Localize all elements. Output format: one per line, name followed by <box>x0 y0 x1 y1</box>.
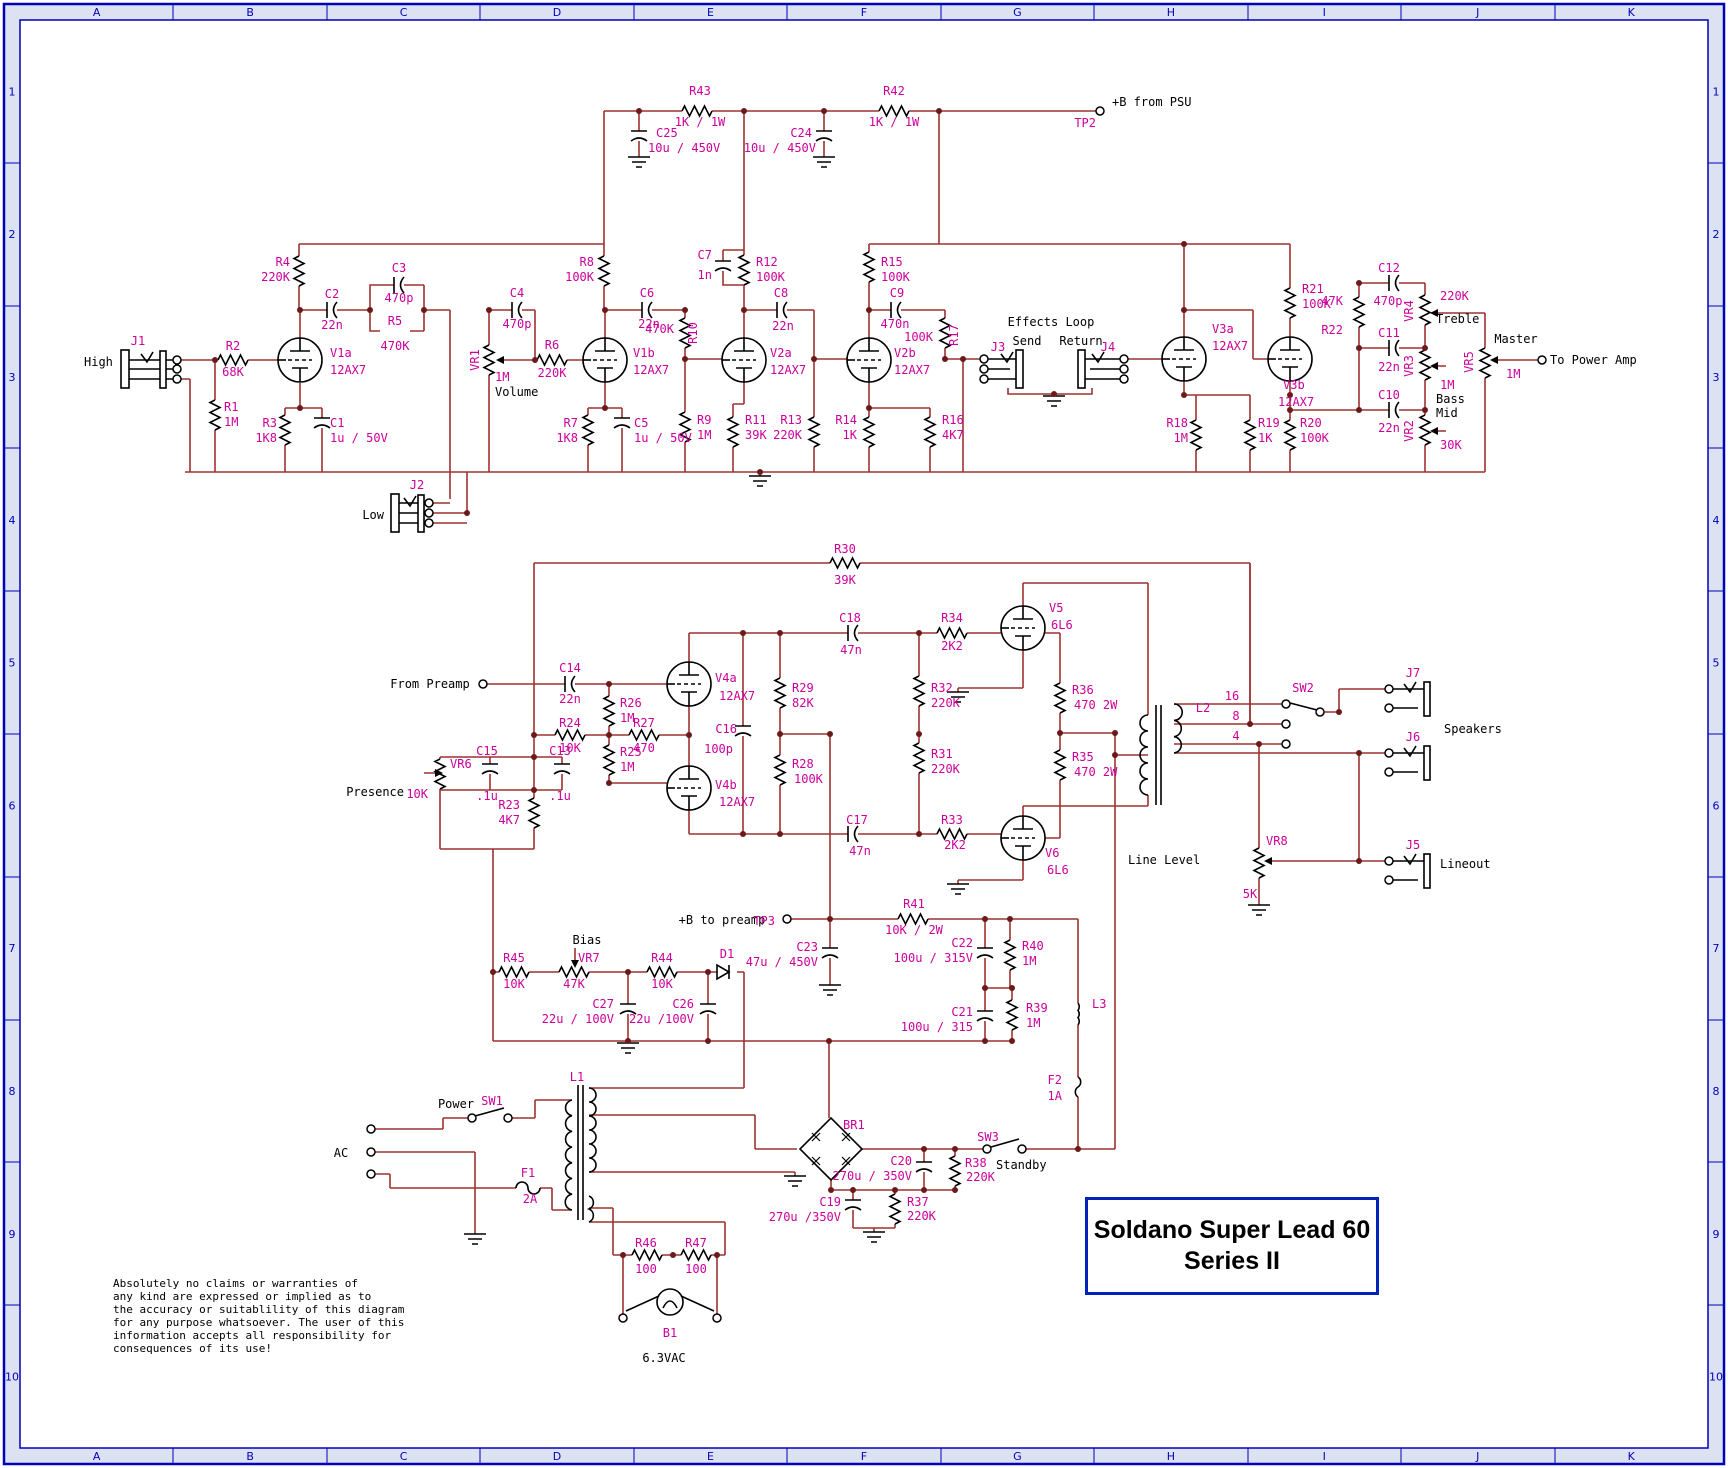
label-3: 3 <box>9 371 16 384</box>
label-22n: 22n <box>772 319 794 333</box>
label-l3: L3 <box>1092 997 1106 1011</box>
label-12ax7: 12AX7 <box>719 689 755 703</box>
label-1m: 1M <box>1174 431 1188 445</box>
label-9: 9 <box>1713 1228 1720 1241</box>
label-100k: 100K <box>565 270 595 284</box>
label-47k: 47K <box>563 977 585 991</box>
label-6: 6 <box>1713 799 1720 812</box>
label-c12: C12 <box>1378 261 1400 275</box>
label-r1: R1 <box>224 400 238 414</box>
label-vr2: VR2 <box>1402 420 1416 442</box>
label-100u-315v: 100u / 315V <box>894 951 973 965</box>
label-1m: 1M <box>224 415 238 429</box>
label-tp3: TP3 <box>753 914 775 928</box>
label-12ax7: 12AX7 <box>719 795 755 809</box>
label-100: 100 <box>635 1262 657 1276</box>
label-c23: C23 <box>796 940 818 954</box>
label-2a: 2A <box>523 1192 538 1206</box>
label-1m: 1M <box>697 428 711 442</box>
label-r4: R4 <box>276 255 290 269</box>
label-v3b: V3b <box>1283 378 1305 392</box>
label-c: C <box>400 1450 408 1463</box>
label-r8: R8 <box>580 255 594 269</box>
label-k: K <box>1628 1450 1636 1463</box>
label-r31: R31 <box>931 747 953 761</box>
label-standby: Standby <box>996 1158 1047 1172</box>
label-c16: C16 <box>715 722 737 736</box>
label-r6: R6 <box>545 338 559 352</box>
label-100k: 100K <box>1300 431 1330 445</box>
label-r10: R10 <box>686 322 700 344</box>
label-e: E <box>707 6 714 19</box>
label-vr1: VR1 <box>468 349 482 371</box>
label-r32: R32 <box>931 681 953 695</box>
label-4: 4 <box>9 514 16 527</box>
label-v4b: V4b <box>715 778 737 792</box>
label-220k: 220K <box>931 696 961 710</box>
label-r20: R20 <box>1300 416 1322 430</box>
label-c22: C22 <box>951 936 973 950</box>
label-220k: 220K <box>907 1209 937 1223</box>
label-c24: C24 <box>790 126 812 140</box>
label-1m: 1M <box>495 370 509 384</box>
label-100p: 100p <box>704 742 733 756</box>
label-r42: R42 <box>883 84 905 98</box>
label-g: G <box>1013 6 1022 19</box>
label-1a: 1A <box>1048 1089 1063 1103</box>
label-1k8: 1K8 <box>556 431 578 445</box>
label-j: J <box>1475 6 1479 19</box>
label-c20: C20 <box>890 1154 912 1168</box>
label-j: J <box>1475 1450 1479 1463</box>
label-r46: R46 <box>635 1236 657 1250</box>
label-tp2: TP2 <box>1074 116 1096 130</box>
label-r38: R38 <box>965 1156 987 1170</box>
label-22u-100v: 22u / 100V <box>542 1012 614 1026</box>
label-c13: C13 <box>549 744 571 758</box>
label-a: A <box>93 6 101 19</box>
label-f1: F1 <box>521 1166 535 1180</box>
label-4: 4 <box>1713 514 1720 527</box>
label-10: 10 <box>1709 1371 1723 1384</box>
label-r3: R3 <box>263 416 277 430</box>
label-b: B <box>246 1450 254 1463</box>
label-r19: R19 <box>1258 416 1280 430</box>
label-e: E <box>707 1450 714 1463</box>
title-line2: Series II <box>1184 1246 1280 1277</box>
label-vr5: VR5 <box>1462 351 1476 373</box>
label-100: 100 <box>685 1262 707 1276</box>
label-5k: 5K <box>1243 887 1258 901</box>
label-12ax7: 12AX7 <box>330 363 366 377</box>
label-r41: R41 <box>903 897 925 911</box>
label-v3a: V3a <box>1212 322 1234 336</box>
label-1m: 1M <box>620 760 634 774</box>
label-9: 9 <box>9 1228 16 1241</box>
label-r33: R33 <box>941 813 963 827</box>
label-r27: R27 <box>633 716 655 730</box>
disclaimer-line: information accepts all responsibility f… <box>113 1329 413 1342</box>
label-c25: C25 <box>656 126 678 140</box>
label-10k: 10K <box>406 787 428 801</box>
label-1k-1w: 1K / 1W <box>675 115 726 129</box>
label-k: K <box>1628 6 1636 19</box>
title-block: Soldano Super Lead 60 Series II <box>1085 1197 1379 1295</box>
label-c26: C26 <box>672 997 694 1011</box>
label-h: H <box>1167 1450 1175 1463</box>
label-r9: R9 <box>697 413 711 427</box>
label-22n: 22n <box>321 318 343 332</box>
label-10: 10 <box>5 1371 19 1384</box>
label-r13: R13 <box>780 413 802 427</box>
label-g: G <box>1013 1450 1022 1463</box>
label-r30: R30 <box>834 542 856 556</box>
label-r47: R47 <box>685 1236 707 1250</box>
label-c6: C6 <box>640 286 654 300</box>
label-presence: Presence <box>346 785 404 799</box>
label-j1: J1 <box>131 334 145 348</box>
label-100k: 100K <box>756 270 786 284</box>
label-j3: J3 <box>991 340 1005 354</box>
label-volume: Volume <box>495 385 538 399</box>
disclaimer-line: Absolutely no claims or warranties of <box>113 1277 413 1290</box>
label-r39: R39 <box>1026 1001 1048 1015</box>
label-c15: C15 <box>476 744 498 758</box>
label-470n: 470n <box>881 317 910 331</box>
label-from-preamp: From Preamp <box>390 677 469 691</box>
title-line1: Soldano Super Lead 60 <box>1094 1215 1370 1246</box>
label-r15: R15 <box>881 255 903 269</box>
label-8: 8 <box>1232 709 1239 723</box>
label-7: 7 <box>9 942 16 955</box>
label-r16: R16 <box>942 413 964 427</box>
label-1m: 1M <box>1440 378 1454 392</box>
label-j6: J6 <box>1406 730 1420 744</box>
label-12ax7: 12AX7 <box>770 363 806 377</box>
label-i: I <box>1323 6 1326 19</box>
label-12ax7: 12AX7 <box>633 363 669 377</box>
label-c10: C10 <box>1378 388 1400 402</box>
label-a: A <box>93 1450 101 1463</box>
label-c4: C4 <box>510 286 524 300</box>
label-12ax7: 12AX7 <box>1278 395 1314 409</box>
label-2k2: 2K2 <box>944 838 966 852</box>
label-j4: J4 <box>1101 340 1115 354</box>
label-r29: R29 <box>792 681 814 695</box>
label-220k: 220K <box>261 270 291 284</box>
label-r17: R17 <box>947 324 961 346</box>
label-r43: R43 <box>689 84 711 98</box>
label-v1b: V1b <box>633 346 655 360</box>
label-r18: R18 <box>1166 416 1188 430</box>
label-22n: 22n <box>1378 421 1400 435</box>
label-b: B <box>246 6 254 19</box>
label-1k: 1K <box>1258 431 1273 445</box>
label-2: 2 <box>1713 228 1720 241</box>
label-82k: 82K <box>792 696 814 710</box>
disclaimer-line: consequences of its use! <box>113 1342 413 1355</box>
schematic-canvas: AABBCCDDEEFFGGHHIIJJKK112233445566778899… <box>0 0 1728 1468</box>
label-r25: R25 <box>620 745 642 759</box>
label-l1: L1 <box>570 1070 584 1084</box>
label-r22: R22 <box>1321 323 1343 337</box>
label-f2: F2 <box>1048 1073 1062 1087</box>
label-sw2: SW2 <box>1292 681 1314 695</box>
label-f: F <box>861 1450 867 1463</box>
label-2k2: 2K2 <box>941 639 963 653</box>
label-68k: 68K <box>222 365 244 379</box>
label-470-2w: 470 2W <box>1074 698 1118 712</box>
label-r26: R26 <box>620 696 642 710</box>
label-r5: R5 <box>388 314 402 328</box>
label-8: 8 <box>1713 1085 1720 1098</box>
label-j5: J5 <box>1406 838 1420 852</box>
label-22n: 22n <box>1378 360 1400 374</box>
label-470k: 470K <box>381 339 411 353</box>
label-send: Send <box>1013 334 1042 348</box>
label-r34: R34 <box>941 611 963 625</box>
label-to-power-amp: To Power Amp <box>1550 353 1637 367</box>
label-4: 4 <box>1232 729 1239 743</box>
label-10u-450v: 10u / 450V <box>744 141 816 155</box>
label-8: 8 <box>9 1085 16 1098</box>
label-.1u: .1u <box>476 789 498 803</box>
label-c8: C8 <box>774 286 788 300</box>
label-r23: R23 <box>498 798 520 812</box>
label-220k: 220K <box>773 428 803 442</box>
label-j2: J2 <box>410 478 424 492</box>
label-c2: C2 <box>325 287 339 301</box>
label-7: 7 <box>1713 942 1720 955</box>
label-d: D <box>553 1450 561 1463</box>
label-10k: 10K <box>651 977 673 991</box>
label-f: F <box>861 6 867 19</box>
label-low: Low <box>362 508 384 522</box>
label-v1a: V1a <box>330 346 352 360</box>
label-r45: R45 <box>503 951 525 965</box>
label-10k-2w: 10K / 2W <box>885 923 944 937</box>
disclaimer-text: Absolutely no claims or warranties ofany… <box>113 1277 413 1355</box>
label-d: D <box>553 6 561 19</box>
label-sw3: SW3 <box>977 1130 999 1144</box>
label-c14: C14 <box>559 661 581 675</box>
label-v4a: V4a <box>715 671 737 685</box>
label-5: 5 <box>9 657 16 670</box>
label-12ax7: 12AX7 <box>1212 339 1248 353</box>
label-270u-350v: 270u /350V <box>769 1210 841 1224</box>
label-mid: Mid <box>1436 406 1458 420</box>
label-10u-450v: 10u / 450V <box>648 141 720 155</box>
label-6l6: 6L6 <box>1047 863 1069 877</box>
label-1n: 1n <box>698 268 712 282</box>
label-v6: V6 <box>1045 846 1059 860</box>
label-c7: C7 <box>698 248 712 262</box>
label-c: C <box>400 6 408 19</box>
label-c11: C11 <box>1378 326 1400 340</box>
label-100u-315: 100u / 315 <box>901 1020 973 1034</box>
label-220k: 220K <box>1440 289 1470 303</box>
label-r44: R44 <box>651 951 673 965</box>
label-return: Return <box>1059 334 1102 348</box>
label-1: 1 <box>9 85 16 98</box>
label-1m: 1M <box>1506 367 1520 381</box>
label-470p: 470p <box>503 317 532 331</box>
label-v5: V5 <box>1049 601 1063 615</box>
label-6l6: 6L6 <box>1051 618 1073 632</box>
label-1k: 1K <box>843 428 858 442</box>
label-line-level: Line Level <box>1128 853 1200 867</box>
label-270u-350v: 270u / 350V <box>833 1169 912 1183</box>
label-r2: R2 <box>226 339 240 353</box>
label-c27: C27 <box>592 997 614 1011</box>
label-bias: Bias <box>573 933 602 947</box>
label-1m: 1M <box>1026 1016 1040 1030</box>
label-r40: R40 <box>1022 939 1044 953</box>
label-220k: 220K <box>966 1170 996 1184</box>
label-ac: AC <box>334 1146 348 1160</box>
label-high: High <box>84 355 113 369</box>
label-10k: 10K <box>503 977 525 991</box>
label-2: 2 <box>9 228 16 241</box>
label-1: 1 <box>1713 85 1720 98</box>
label-r37: R37 <box>907 1195 929 1209</box>
label-100k: 100K <box>794 772 824 786</box>
label-vr7: VR7 <box>578 951 600 965</box>
label-d1: D1 <box>720 947 734 961</box>
label-speakers: Speakers <box>1444 722 1502 736</box>
label-470p: 470p <box>385 291 414 305</box>
label-c18: C18 <box>839 611 861 625</box>
label-c17: C17 <box>846 813 868 827</box>
label-r7: R7 <box>564 416 578 430</box>
label-bass: Bass <box>1436 392 1465 406</box>
label-r28: R28 <box>792 757 814 771</box>
label-1m: 1M <box>1022 954 1036 968</box>
label-6: 6 <box>9 799 16 812</box>
label-.1u: .1u <box>549 789 571 803</box>
label-22u-100v: 22u /100V <box>629 1012 694 1026</box>
label-sw1: SW1 <box>481 1094 503 1108</box>
label-c19: C19 <box>819 1195 841 1209</box>
label-470k: 470K <box>645 322 675 336</box>
label-r12: R12 <box>756 255 778 269</box>
label-30k: 30K <box>1440 438 1462 452</box>
label-v2a: V2a <box>770 346 792 360</box>
label-lineout: Lineout <box>1440 857 1491 871</box>
label-100k: 100K <box>904 330 934 344</box>
label-1k-1w: 1K / 1W <box>869 115 920 129</box>
label-r35: R35 <box>1072 750 1094 764</box>
label-+b-from-psu: +B from PSU <box>1112 95 1191 109</box>
label-c3: C3 <box>392 261 406 275</box>
label-r24: R24 <box>559 716 581 730</box>
label-100k: 100K <box>881 270 911 284</box>
label-16: 16 <box>1225 689 1239 703</box>
label-master: Master <box>1494 332 1537 346</box>
label-47u-450v: 47u / 450V <box>746 955 818 969</box>
label-6.3vac: 6.3VAC <box>642 1351 685 1365</box>
label-vr4: VR4 <box>1402 300 1416 322</box>
label-5: 5 <box>1713 657 1720 670</box>
label-470p: 470p <box>1374 294 1403 308</box>
schematic-sheet: AABBCCDDEEFFGGHHIIJJKK112233445566778899… <box>0 0 1728 1468</box>
label-1u-50v: 1u / 50V <box>634 431 692 445</box>
label-effects-loop: Effects Loop <box>1008 315 1095 329</box>
label-3: 3 <box>1713 371 1720 384</box>
label-c5: C5 <box>634 416 648 430</box>
label-4k7: 4K7 <box>498 813 520 827</box>
disclaimer-line: for any purpose whatsoever. The user of … <box>113 1316 413 1329</box>
label-c21: C21 <box>951 1005 973 1019</box>
label-v2b: V2b <box>894 346 916 360</box>
label-h: H <box>1167 6 1175 19</box>
label-39k: 39K <box>834 573 856 587</box>
label-r11: R11 <box>745 413 767 427</box>
label-vr8: VR8 <box>1266 834 1288 848</box>
label-br1: BR1 <box>843 1118 865 1132</box>
label-l2: L2 <box>1196 701 1210 715</box>
label-treble: Treble <box>1436 312 1479 326</box>
label-1u-50v: 1u / 50V <box>330 431 388 445</box>
label-c9: C9 <box>890 286 904 300</box>
label-39k: 39K <box>745 428 767 442</box>
label-1k8: 1K8 <box>255 431 277 445</box>
label-r14: R14 <box>835 413 857 427</box>
label-vr6: VR6 <box>450 757 472 771</box>
label-22n: 22n <box>559 692 581 706</box>
label-470-2w: 470 2W <box>1074 765 1118 779</box>
label-12ax7: 12AX7 <box>894 363 930 377</box>
label-b1: B1 <box>663 1326 677 1340</box>
label-4k7: 4K7 <box>942 428 964 442</box>
label-220k: 220K <box>538 366 568 380</box>
label-47n: 47n <box>840 643 862 657</box>
label-c1: C1 <box>330 416 344 430</box>
label-47k: 47K <box>1321 294 1343 308</box>
label-r36: R36 <box>1072 683 1094 697</box>
label-i: I <box>1323 1450 1326 1463</box>
label-vr3: VR3 <box>1402 355 1416 377</box>
disclaimer-line: the accuracy or suitablility of this dia… <box>113 1303 413 1316</box>
label-220k: 220K <box>931 762 961 776</box>
label-j7: J7 <box>1406 666 1420 680</box>
label-47n: 47n <box>849 844 871 858</box>
label-power: Power <box>438 1097 474 1111</box>
disclaimer-line: any kind are expressed or implied as to <box>113 1290 413 1303</box>
